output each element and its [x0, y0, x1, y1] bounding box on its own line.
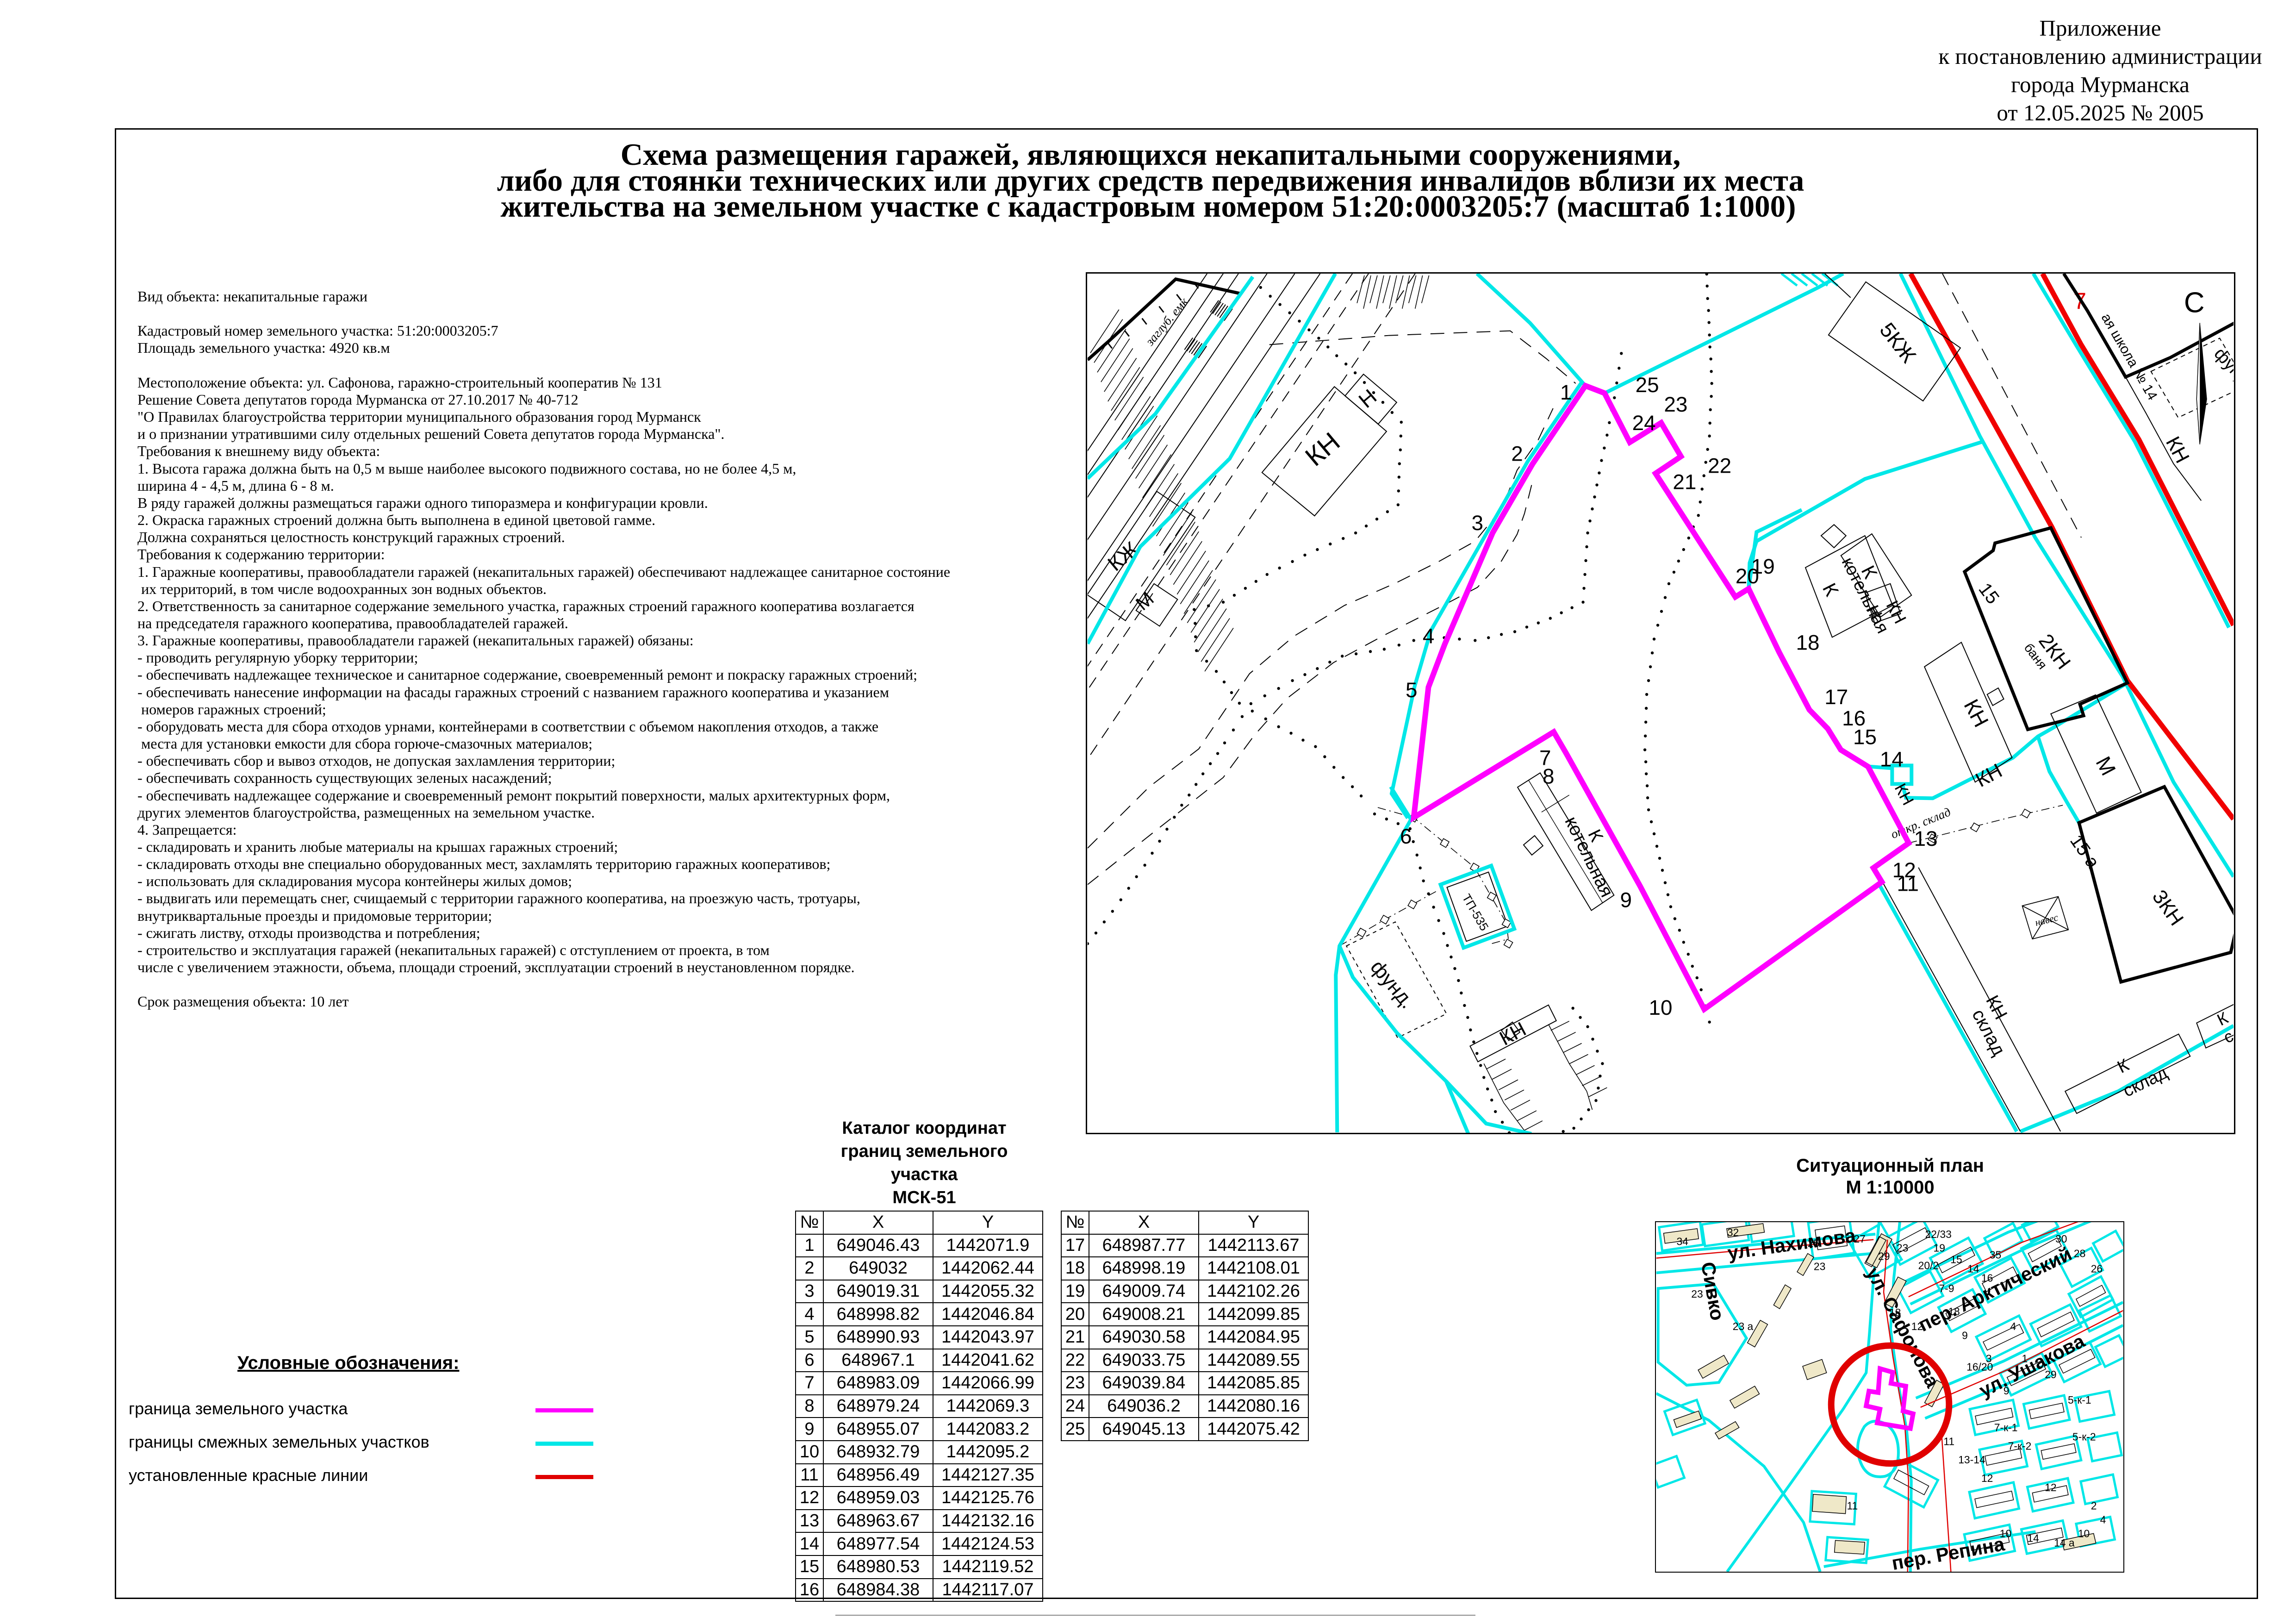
- svg-text:30: 30: [2055, 1233, 2067, 1245]
- svg-text:23: 23: [1814, 1260, 1825, 1272]
- svg-text:11: 11: [1847, 1500, 1858, 1512]
- svg-text:фунд: фунд: [2210, 344, 2235, 389]
- svg-text:1: 1: [2022, 1352, 2028, 1364]
- svg-text:4: 4: [2010, 1320, 2016, 1332]
- svg-text:5-к-1: 5-к-1: [2068, 1394, 2091, 1406]
- svg-text:35: 35: [1990, 1249, 2001, 1261]
- svg-text:5КЖ: 5КЖ: [1875, 318, 1921, 368]
- svg-text:27: 27: [1854, 1233, 1865, 1245]
- svg-text:15: 15: [1950, 1254, 1962, 1266]
- svg-text:25: 25: [1808, 1237, 1819, 1249]
- svg-text:4: 4: [2100, 1514, 2106, 1526]
- svg-text:10: 10: [2000, 1527, 2011, 1539]
- svg-text:26: 26: [2091, 1262, 2103, 1274]
- svg-text:12: 12: [1981, 1472, 1993, 1484]
- svg-text:4: 4: [1423, 624, 1435, 648]
- svg-text:23 б: 23 б: [1691, 1288, 1712, 1300]
- svg-text:14: 14: [1967, 1262, 1979, 1274]
- svg-text:21: 21: [1673, 469, 1696, 493]
- svg-text:24: 24: [1632, 411, 1656, 435]
- svg-text:9: 9: [1962, 1330, 1968, 1342]
- svg-text:12: 12: [1911, 1320, 1923, 1332]
- svg-text:15 а: 15 а: [2066, 831, 2103, 872]
- svg-text:М: М: [2091, 752, 2121, 779]
- svg-text:19: 19: [1933, 1242, 1945, 1254]
- svg-text:20: 20: [1736, 564, 1759, 588]
- svg-text:8: 8: [1543, 764, 1555, 788]
- svg-text:23: 23: [1664, 392, 1687, 416]
- svg-text:6: 6: [1400, 824, 1412, 848]
- svg-text:М: М: [1132, 587, 1158, 614]
- svg-text:3: 3: [1472, 511, 1484, 535]
- svg-text:16: 16: [1981, 1272, 1993, 1284]
- svg-text:16/20: 16/20: [1966, 1361, 1993, 1373]
- svg-text:14 а: 14 а: [2054, 1537, 2075, 1549]
- svg-text:23 а: 23 а: [1733, 1320, 1754, 1332]
- svg-text:22/33: 22/33: [1925, 1228, 1952, 1240]
- svg-text:10: 10: [1649, 995, 1673, 1019]
- svg-text:2: 2: [1511, 442, 1523, 466]
- svg-text:11: 11: [1943, 1435, 1954, 1447]
- svg-text:7-9: 7-9: [1939, 1282, 1954, 1294]
- svg-text:Н: Н: [1354, 384, 1381, 412]
- svg-text:20/2: 20/2: [1918, 1259, 1939, 1271]
- svg-text:22: 22: [1708, 454, 1731, 478]
- svg-text:ТП-535: ТП-535: [1459, 892, 1490, 933]
- svg-text:КН: КН: [2161, 433, 2194, 467]
- svg-text:29: 29: [2045, 1368, 2056, 1380]
- svg-text:1: 1: [1560, 380, 1572, 404]
- svg-text:9: 9: [1620, 888, 1632, 912]
- svg-text:12: 12: [1892, 858, 1916, 882]
- svg-text:10: 10: [2078, 1527, 2090, 1539]
- svg-text:32: 32: [1727, 1226, 1739, 1238]
- svg-text:5: 5: [1406, 678, 1418, 702]
- svg-text:14: 14: [2027, 1532, 2039, 1544]
- svg-text:7-к-2: 7-к-2: [2008, 1440, 2032, 1452]
- svg-text:23: 23: [1897, 1242, 1908, 1254]
- svg-text:12: 12: [2045, 1481, 2056, 1493]
- svg-text:С: С: [2184, 287, 2205, 319]
- svg-text:2: 2: [2091, 1500, 2097, 1512]
- svg-text:9: 9: [2004, 1385, 2010, 1397]
- svg-text:14: 14: [1880, 747, 1904, 771]
- svg-text:13-14: 13-14: [1958, 1454, 1985, 1466]
- svg-text:13: 13: [1914, 826, 1938, 850]
- svg-text:7-к-1: 7-к-1: [1994, 1422, 2018, 1434]
- svg-text:3КН: 3КН: [2148, 886, 2188, 930]
- svg-text:5-к-2: 5-к-2: [2072, 1431, 2096, 1443]
- svg-text:с: с: [2221, 1027, 2235, 1047]
- svg-text:18: 18: [1948, 1305, 1960, 1318]
- svg-text:17: 17: [1824, 685, 1848, 709]
- svg-text:18: 18: [1796, 630, 1819, 654]
- svg-text:28: 28: [2074, 1248, 2085, 1260]
- svg-text:К: К: [2214, 1008, 2231, 1029]
- svg-text:16: 16: [1842, 706, 1866, 730]
- svg-text:К: К: [1818, 580, 1843, 600]
- svg-text:18: 18: [1889, 1306, 1901, 1318]
- svg-text:34: 34: [1676, 1236, 1688, 1248]
- svg-text:КН: КН: [1496, 1018, 1530, 1050]
- svg-text:КН: КН: [1959, 695, 1993, 731]
- svg-text:25: 25: [1636, 373, 1659, 397]
- svg-text:котельная: котельная: [1838, 554, 1892, 637]
- svg-text:29: 29: [1878, 1250, 1890, 1262]
